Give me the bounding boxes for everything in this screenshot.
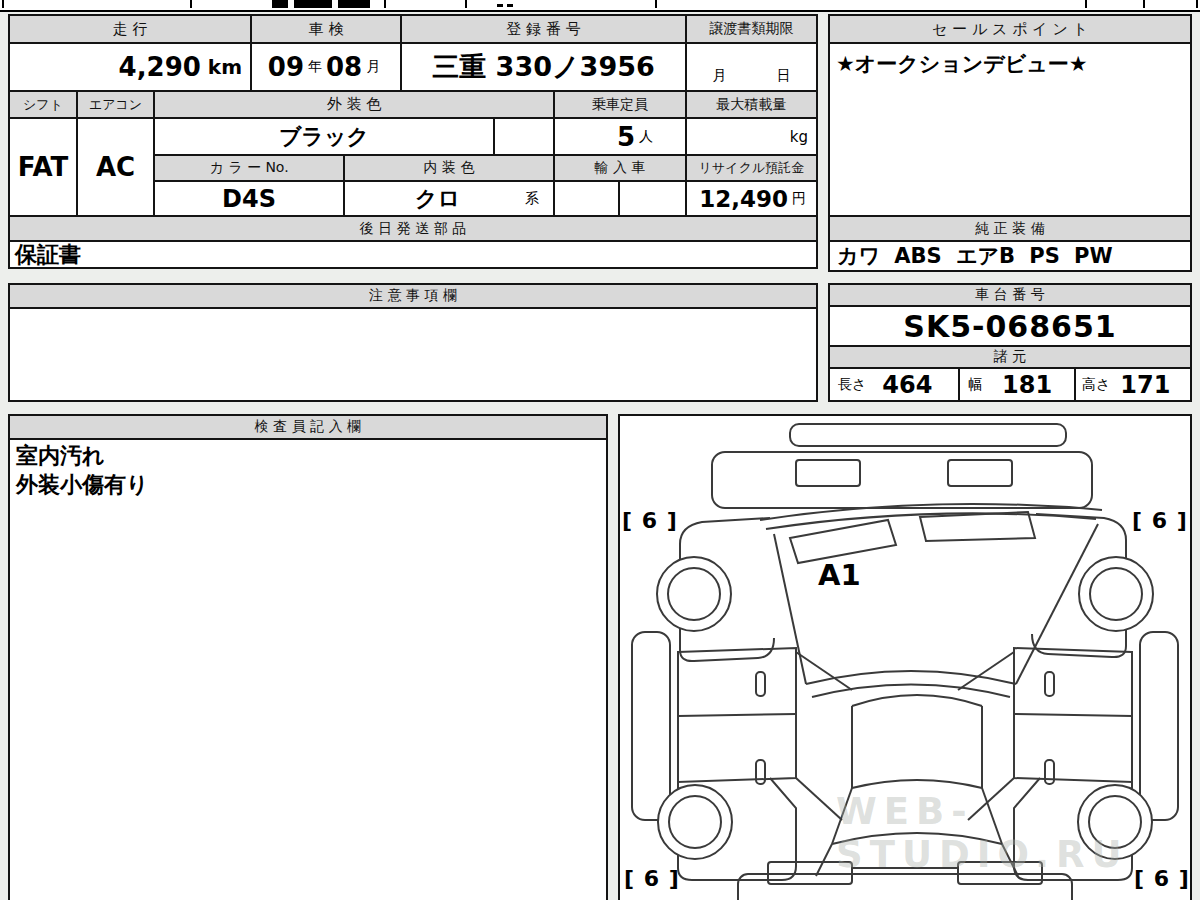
spec-length-cell: 長さ 464 xyxy=(830,369,958,400)
inspector-header: 検 査 員 記 入 欄 xyxy=(10,416,606,438)
spec-width-label: 幅 xyxy=(968,376,982,394)
later-parts-value: 保証書 xyxy=(15,242,81,267)
aircon-header: エアコン xyxy=(78,92,153,117)
recycle-deposit-label: リサイクル預託金 xyxy=(699,159,805,177)
later-parts-header: 後 日 発 送 部 品 xyxy=(10,217,816,240)
inspector-note-line2: 外装小傷有り xyxy=(16,471,149,500)
mileage-header: 走 行 xyxy=(10,16,250,42)
later-parts-value-cell: 保証書 xyxy=(10,242,816,267)
exterior-color-code-cell xyxy=(495,119,553,154)
sales-point-header: セ ー ル ス ポ イ ン ト xyxy=(830,16,1190,42)
aircon-value: AC xyxy=(96,152,135,182)
aircon-value-cell: AC xyxy=(78,119,153,215)
transfer-day-unit: 日 xyxy=(777,67,791,85)
cutoff-row-top xyxy=(0,0,1200,12)
spec-height-label: 高さ xyxy=(1082,376,1110,394)
import-car-label: 輸 入 車 xyxy=(595,159,646,177)
inspector-notes-cell: 室内汚れ 外装小傷有り xyxy=(10,440,606,900)
shift-header: シフト xyxy=(10,92,76,117)
mileage-value: 4,290 xyxy=(119,52,201,82)
inspection-header: 車 検 xyxy=(252,16,400,42)
registration-label: 登 録 番 号 xyxy=(506,20,580,39)
interior-color-value-cell: クロ 系 xyxy=(345,182,553,215)
condition-diagram-panel: [ 6 ] [ 6 ] [ 6 ] [ 6 ] A1 xyxy=(618,414,1192,900)
inspection-year: 09 xyxy=(268,52,304,82)
spec-height-value: 171 xyxy=(1120,371,1170,399)
tire-depth-front-right: [ 6 ] xyxy=(1132,508,1188,533)
capacity-value-cell: 5 人 xyxy=(555,119,685,154)
color-no-header: カ ラ ー No. xyxy=(155,156,343,180)
inspection-value-cell: 09 年 08 月 xyxy=(252,44,400,90)
condition-diagram-canvas: [ 6 ] [ 6 ] [ 6 ] [ 6 ] A1 xyxy=(620,416,1190,900)
spec-width-value: 181 xyxy=(1002,371,1052,399)
max-load-value-cell: kg xyxy=(687,119,816,154)
import-cell-1 xyxy=(555,182,618,215)
mileage-unit: km xyxy=(208,55,242,79)
transfer-deadline-value-cell: 月 日 xyxy=(687,44,816,90)
interior-color-value: クロ xyxy=(415,184,460,214)
registration-header: 登 録 番 号 xyxy=(402,16,685,42)
equipment-header: 純 正 装 備 xyxy=(830,217,1190,240)
capacity-value: 5 xyxy=(617,122,635,152)
transfer-month-unit: 月 xyxy=(712,67,726,85)
exterior-color-label: 外 装 色 xyxy=(327,95,382,114)
tire-depth-rear-right: [ 6 ] xyxy=(1134,866,1190,891)
chassis-label: 車 台 番 号 xyxy=(975,286,1044,304)
capacity-header: 乗車定員 xyxy=(555,92,685,117)
shift-value-cell: FAT xyxy=(10,119,76,215)
inspection-label: 車 検 xyxy=(309,20,344,39)
inspector-table: 検 査 員 記 入 欄 室内汚れ 外装小傷有り xyxy=(8,414,608,900)
chassis-value-cell: SK5-068651 xyxy=(830,307,1190,345)
inspection-month-unit: 月 xyxy=(366,58,380,76)
import-car-header: 輸 入 車 xyxy=(555,156,685,180)
sales-point-value-cell: ★オークションデビュー★ xyxy=(830,44,1190,215)
notes-table: 注 意 事 項 欄 xyxy=(8,283,818,402)
chassis-header: 車 台 番 号 xyxy=(830,285,1190,305)
recycle-deposit-header: リサイクル預託金 xyxy=(687,156,816,180)
shift-label: シフト xyxy=(23,96,63,114)
inspector-label: 検 査 員 記 入 欄 xyxy=(255,418,361,436)
sales-point-value: ★オークションデビュー★ xyxy=(836,50,1088,78)
shift-value: FAT xyxy=(18,152,69,182)
specs-header: 諸 元 xyxy=(830,347,1190,367)
car-top-view-diagram xyxy=(620,416,1190,900)
equipment-value-cell: カワ ABS エアB PS PW xyxy=(830,242,1190,270)
max-load-header: 最大積載量 xyxy=(687,92,816,117)
aircon-label: エアコン xyxy=(89,96,142,114)
inspector-note-line1: 室内汚れ xyxy=(16,442,105,471)
mileage-value-cell: 4,290 km xyxy=(10,44,250,90)
transfer-deadline-header: 譲渡書類期限 xyxy=(687,16,816,42)
chassis-number: SK5-068651 xyxy=(903,309,1116,344)
exterior-color-value: ブラック xyxy=(279,122,369,152)
chassis-specs-table: 車 台 番 号 SK5-068651 諸 元 長さ 464 幅 181 高さ 1… xyxy=(828,283,1192,402)
mileage-label: 走 行 xyxy=(113,20,148,39)
recycle-deposit-value-cell: 12,490 円 xyxy=(687,182,816,215)
spec-height-cell: 高さ 171 xyxy=(1076,369,1190,400)
color-no-label: カ ラ ー No. xyxy=(209,159,288,177)
import-cell-2 xyxy=(620,182,685,215)
hood-grade-mark: A1 xyxy=(818,558,861,592)
exterior-color-value-cell: ブラック xyxy=(155,119,493,154)
transfer-deadline-label: 譲渡書類期限 xyxy=(710,20,794,38)
sales-point-table: セ ー ル ス ポ イ ン ト ★オークションデビュー★ 純 正 装 備 カワ … xyxy=(828,14,1192,272)
tire-depth-rear-left: [ 6 ] xyxy=(624,866,680,891)
spec-width-cell: 幅 181 xyxy=(960,369,1074,400)
interior-color-header: 内 装 色 xyxy=(345,156,553,180)
later-parts-label: 後 日 発 送 部 品 xyxy=(360,220,466,238)
recycle-deposit-value: 12,490 xyxy=(699,186,788,212)
color-no-value: D4S xyxy=(222,185,276,213)
tire-depth-front-left: [ 6 ] xyxy=(622,508,678,533)
color-no-value-cell: D4S xyxy=(155,182,343,215)
equipment-label: 純 正 装 備 xyxy=(975,220,1044,238)
specs-label: 諸 元 xyxy=(994,348,1026,366)
notes-value-cell xyxy=(10,309,816,400)
notes-label: 注 意 事 項 欄 xyxy=(369,287,457,305)
spec-length-label: 長さ xyxy=(838,376,866,394)
equipment-value: カワ ABS エアB PS PW xyxy=(837,242,1113,270)
max-load-label: 最大積載量 xyxy=(717,96,787,114)
capacity-unit: 人 xyxy=(639,128,653,146)
interior-color-label: 内 装 色 xyxy=(424,159,475,177)
inspection-month: 08 xyxy=(326,52,362,82)
vehicle-info-table: 走 行 車 検 登 録 番 号 譲渡書類期限 4,290 km 09 年 08 … xyxy=(8,14,818,269)
sales-point-label: セ ー ル ス ポ イ ン ト xyxy=(932,20,1088,39)
interior-color-suffix: 系 xyxy=(525,190,539,208)
capacity-label: 乗車定員 xyxy=(592,96,648,114)
spec-length-value: 464 xyxy=(882,371,932,399)
inspection-year-unit: 年 xyxy=(308,58,322,76)
registration-value-cell: 三重 330ノ3956 xyxy=(402,44,685,90)
registration-value: 三重 330ノ3956 xyxy=(432,49,655,85)
recycle-deposit-unit: 円 xyxy=(792,190,806,208)
exterior-color-header: 外 装 色 xyxy=(155,92,553,117)
notes-header: 注 意 事 項 欄 xyxy=(10,285,816,307)
max-load-unit: kg xyxy=(790,128,808,146)
